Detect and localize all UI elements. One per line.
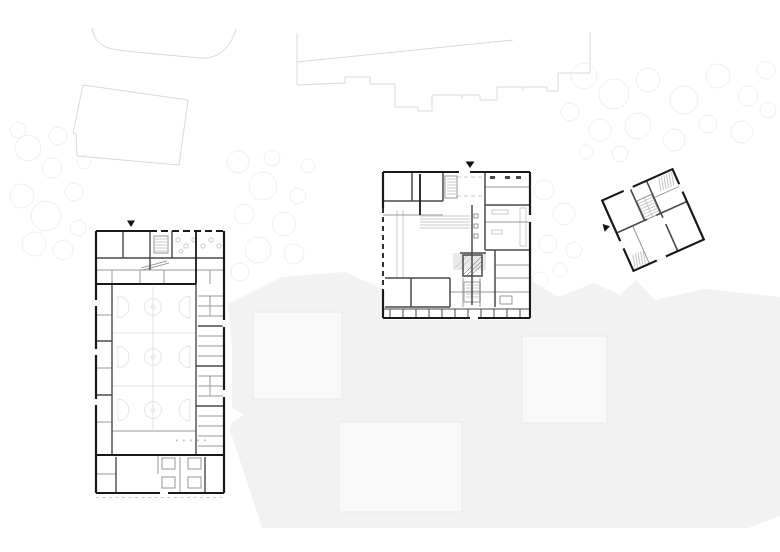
site-plan-canvas [0,0,780,552]
building-center-furniture-marks [490,176,521,179]
building-center-floor [381,170,532,320]
ground-pad-3 [339,422,462,512]
building-center-plan [381,170,532,320]
building-left-plan [94,229,226,498]
ground-pad-2 [522,336,607,423]
ground-pad-1 [253,312,342,399]
